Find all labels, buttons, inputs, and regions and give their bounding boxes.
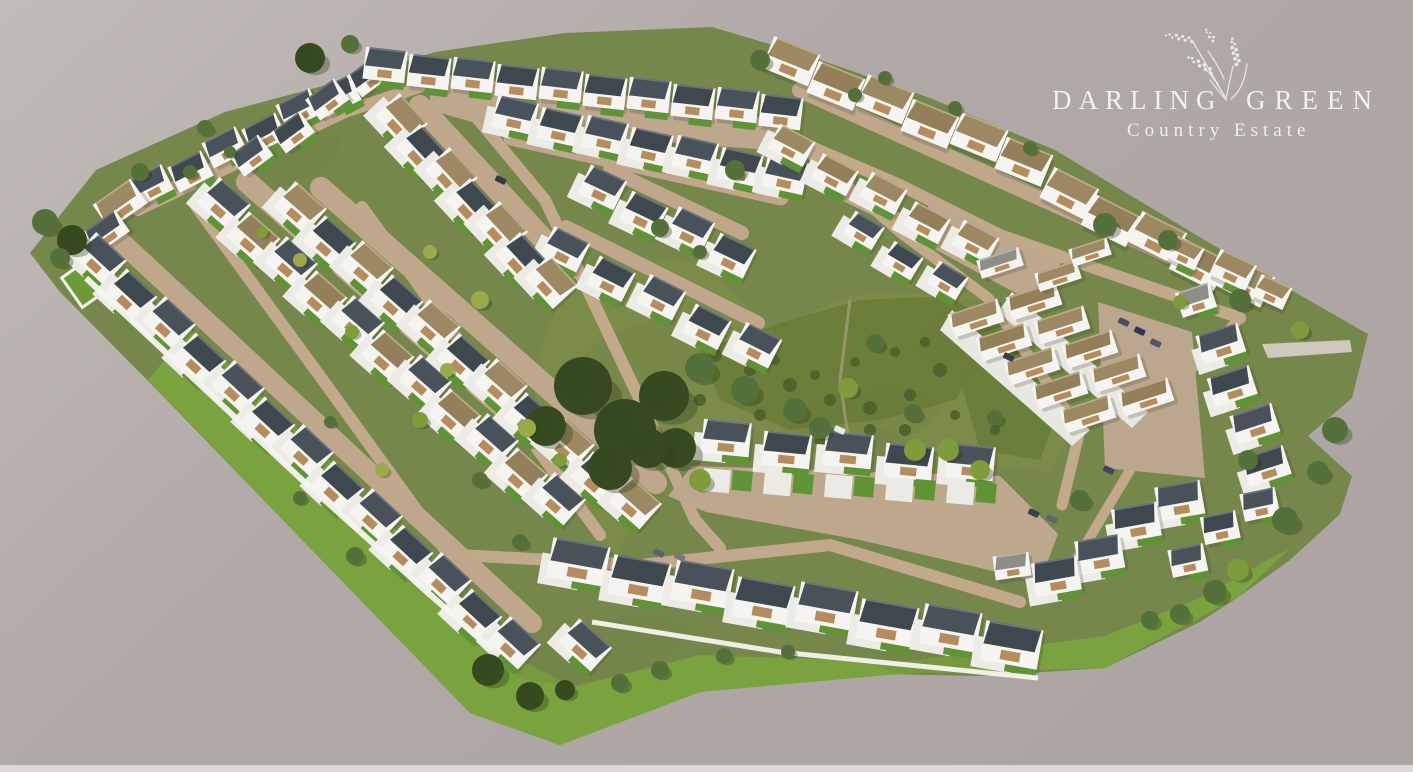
svg-text:Country Estate: Country Estate: [1127, 120, 1310, 141]
svg-text:DARLING: DARLING: [1052, 85, 1223, 115]
svg-text:GREEN: GREEN: [1246, 85, 1381, 115]
